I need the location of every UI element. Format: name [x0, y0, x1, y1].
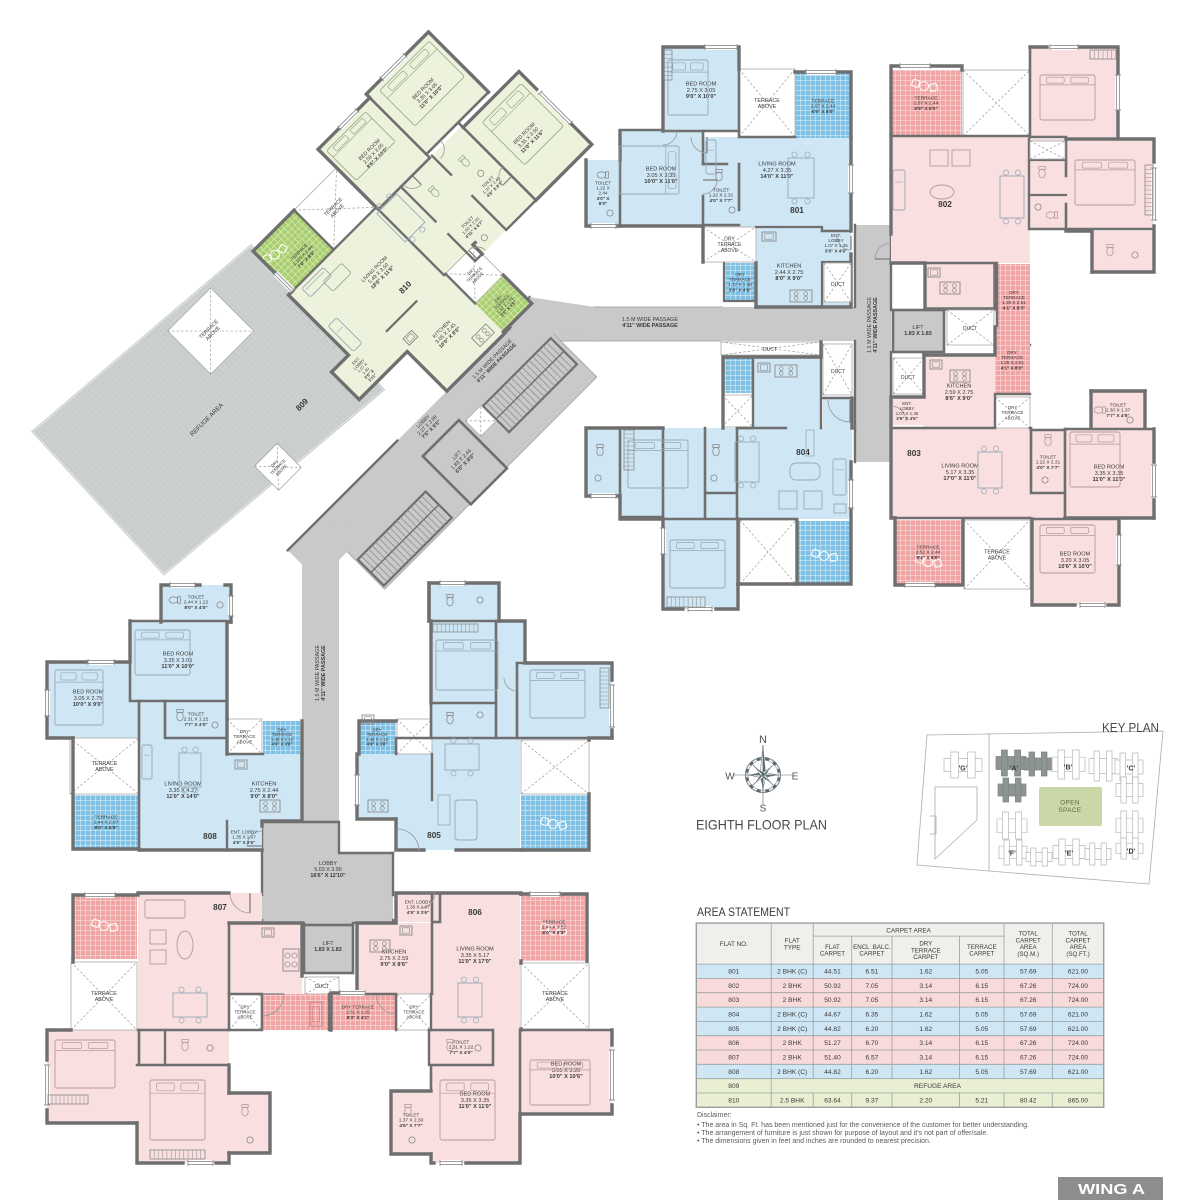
svg-text:TOILET: TOILET: [1110, 402, 1127, 408]
svg-text:ABOVE: ABOVE: [237, 739, 253, 744]
svg-text:AREA: AREA: [1070, 944, 1088, 951]
svg-text:2.07 X 2.44: 2.07 X 2.44: [914, 101, 939, 107]
svg-text:ABOVE: ABOVE: [95, 767, 114, 773]
svg-text:7'7" X 4'0": 7'7" X 4'0": [449, 1050, 472, 1056]
svg-text:2.75 X 3.05: 2.75 X 3.05: [687, 88, 716, 94]
svg-text:807: 807: [213, 903, 227, 912]
svg-text:8'0" X 4'0": 8'0" X 4'0": [184, 605, 207, 611]
svg-text:2 BHK: 2 BHK: [783, 983, 803, 990]
svg-text:67.26: 67.26: [1020, 983, 1037, 990]
svg-text:BED ROOM: BED ROOM: [460, 1092, 491, 1098]
svg-text:LIVING ROOM: LIVING ROOM: [941, 464, 979, 470]
svg-text:2.75 X 2.59: 2.75 X 2.59: [380, 956, 409, 962]
svg-text:3'6" X 4'9": 3'6" X 4'9": [729, 287, 751, 292]
svg-text:4'6" X 7'7": 4'6" X 7'7": [399, 1123, 422, 1129]
svg-text:6'9" X 8'0": 6'9" X 8'0": [914, 106, 937, 112]
svg-text:4'5" X 3'6": 4'5" X 3'6": [233, 840, 255, 845]
svg-text:2.20: 2.20: [919, 1097, 932, 1104]
svg-text:3.05 X 3.20: 3.05 X 3.20: [552, 1068, 581, 1074]
svg-text:11'0" X 17'0": 11'0" X 17'0": [458, 959, 492, 965]
svg-text:5.05: 5.05: [975, 1012, 988, 1019]
svg-text:TOILET: TOILET: [453, 1039, 470, 1045]
svg-text:5.05: 5.05: [975, 969, 988, 976]
svg-text:Disclaimer:: Disclaimer:: [697, 1112, 732, 1119]
svg-text:621.00: 621.00: [1068, 1069, 1089, 1076]
svg-text:809: 809: [728, 1083, 739, 1090]
svg-text:W: W: [725, 772, 735, 783]
svg-text:14'0" X 11'0": 14'0" X 11'0": [760, 174, 794, 180]
svg-text:TERRACE: TERRACE: [915, 95, 938, 101]
svg-text:CARPET: CARPET: [820, 951, 845, 958]
svg-text:CARPET: CARPET: [913, 954, 938, 961]
svg-text:• The arrangement of furniture: • The arrangement of furniture is just s…: [697, 1130, 988, 1137]
svg-text:3.20 X 3.05: 3.20 X 3.05: [1061, 558, 1090, 564]
svg-text:5.05: 5.05: [975, 1026, 988, 1033]
svg-text:3.14: 3.14: [919, 1040, 932, 1047]
svg-text:803: 803: [728, 997, 739, 1004]
svg-text:1.62: 1.62: [919, 1026, 932, 1033]
svg-text:2 BHK: 2 BHK: [783, 997, 803, 1004]
svg-text:ABOVE: ABOVE: [406, 1015, 421, 1020]
svg-text:DUCT: DUCT: [763, 347, 777, 353]
svg-text:7'7" X 4'6": 7'7" X 4'6": [1106, 413, 1129, 419]
svg-text:TYPE: TYPE: [784, 944, 801, 951]
svg-text:44.51: 44.51: [824, 969, 841, 976]
svg-text:2 BHK (C): 2 BHK (C): [777, 1069, 807, 1076]
svg-text:REFUGE AREA: REFUGE AREA: [914, 1083, 962, 1090]
svg-text:LOBBY: LOBBY: [319, 861, 337, 867]
svg-text:4'1" X 8'3": 4'1" X 8'3": [1001, 365, 1023, 370]
svg-text:ABOVE: ABOVE: [546, 997, 565, 1003]
svg-text:10'0" X 10'6": 10'0" X 10'6": [549, 1074, 583, 1080]
svg-text:E: E: [792, 772, 799, 783]
svg-text:10'0" X 9'0": 10'0" X 9'0": [73, 702, 104, 708]
svg-text:4'5" X 3'6": 4'5" X 3'6": [407, 910, 429, 915]
svg-text:621.00: 621.00: [1068, 969, 1089, 976]
svg-text:11'0" X 11'0": 11'0" X 11'0": [1093, 477, 1126, 483]
svg-text:AREA: AREA: [1020, 944, 1038, 951]
svg-text:S: S: [760, 804, 767, 815]
svg-text:3.14: 3.14: [919, 983, 932, 990]
svg-text:3'6" X 4'5": 3'6" X 4'5": [896, 416, 917, 421]
svg-text:44.82: 44.82: [824, 1069, 841, 1076]
svg-text:17'0" X 11'0": 17'0" X 11'0": [943, 476, 977, 482]
svg-text:16'6" X 12'10": 16'6" X 12'10": [310, 873, 346, 879]
svg-text:51.40: 51.40: [824, 1055, 841, 1062]
svg-text:9'0" X 10'0": 9'0" X 10'0": [686, 94, 717, 100]
svg-text:2 BHK: 2 BHK: [783, 1040, 803, 1047]
svg-text:SPACE: SPACE: [1058, 807, 1081, 814]
svg-text:7.05: 7.05: [865, 983, 878, 990]
svg-text:3'6" X 4'5": 3'6" X 4'5": [825, 248, 847, 253]
svg-text:DUCT: DUCT: [831, 282, 845, 288]
svg-text:TERRACE: TERRACE: [543, 919, 566, 925]
svg-text:804: 804: [796, 448, 810, 457]
svg-text:• The area in Sq. Ft. has been: • The area in Sq. Ft. has been mentioned…: [697, 1122, 1029, 1129]
svg-text:DRY: DRY: [919, 940, 932, 947]
svg-text:1.22 X 2.31: 1.22 X 2.31: [709, 193, 734, 199]
svg-text:2.30 X 1.37: 2.30 X 1.37: [1106, 408, 1131, 414]
svg-text:6.35: 6.35: [865, 1012, 878, 1019]
svg-text:2 BHK (C): 2 BHK (C): [777, 1026, 807, 1033]
svg-text:DUCT: DUCT: [901, 375, 915, 381]
svg-text:7'7" X 4'0": 7'7" X 4'0": [184, 722, 207, 728]
svg-text:802: 802: [938, 200, 952, 209]
svg-text:BED ROOM: BED ROOM: [1060, 552, 1091, 558]
svg-text:805: 805: [427, 831, 441, 840]
svg-text:7.05: 7.05: [865, 997, 878, 1004]
svg-text:4'11" WIDE PASSAGE: 4'11" WIDE PASSAGE: [873, 297, 879, 353]
svg-text:'D': 'D': [1127, 849, 1136, 856]
svg-text:'E': 'E': [1065, 851, 1073, 858]
svg-text:805: 805: [728, 1026, 739, 1033]
svg-text:5.17 X 3.35: 5.17 X 3.35: [946, 470, 975, 476]
svg-text:TOILET: TOILET: [713, 187, 730, 193]
svg-text:FLAT NO.: FLAT NO.: [720, 941, 748, 948]
svg-text:TERRACE: TERRACE: [917, 544, 940, 550]
svg-text:1.22 X 2.31: 1.22 X 2.31: [1036, 460, 1061, 466]
svg-text:ABOVE: ABOVE: [1005, 415, 1021, 420]
svg-text:6.20: 6.20: [865, 1026, 878, 1033]
svg-text:1.83 X 1.83: 1.83 X 1.83: [904, 331, 932, 337]
svg-text:KITCHEN: KITCHEN: [777, 264, 802, 270]
svg-text:2 BHK (C): 2 BHK (C): [777, 1012, 807, 1019]
svg-text:OPEN: OPEN: [1060, 800, 1080, 807]
svg-text:6.57: 6.57: [865, 1055, 878, 1062]
svg-text:11'0" X 14'0": 11'0" X 14'0": [166, 794, 200, 800]
svg-text:'B': 'B': [1064, 765, 1073, 772]
svg-text:808: 808: [203, 832, 217, 841]
svg-text:3.35 X 3.35: 3.35 X 3.35: [1095, 471, 1124, 477]
svg-text:1.37 X 2.30: 1.37 X 2.30: [399, 1118, 424, 1124]
svg-text:57.69: 57.69: [1020, 1026, 1037, 1033]
svg-text:807: 807: [728, 1055, 739, 1062]
svg-text:1.83 X 1.83: 1.83 X 1.83: [314, 947, 342, 953]
svg-text:1.62: 1.62: [919, 1012, 932, 1019]
svg-text:2.31 X 1.22: 2.31 X 1.22: [184, 717, 209, 723]
svg-text:4'0" X 7'7": 4'0" X 7'7": [1036, 465, 1059, 471]
svg-text:724.00: 724.00: [1068, 1055, 1089, 1062]
svg-text:3.35 X 5.17: 3.35 X 5.17: [461, 953, 490, 959]
svg-text:TERRACE: TERRACE: [812, 98, 835, 104]
svg-text:(SQ.FT.): (SQ.FT.): [1066, 951, 1089, 958]
svg-text:DUCT: DUCT: [963, 326, 977, 332]
svg-text:724.00: 724.00: [1068, 1040, 1089, 1047]
svg-text:5.21: 5.21: [975, 1097, 988, 1104]
svg-text:BED ROOM: BED ROOM: [686, 82, 717, 88]
svg-text:801: 801: [790, 206, 804, 215]
svg-text:2 BHK: 2 BHK: [783, 1055, 803, 1062]
svg-text:KITCHEN: KITCHEN: [252, 782, 277, 788]
svg-text:2.44 X 2.75: 2.44 X 2.75: [775, 270, 804, 276]
svg-text:44.67: 44.67: [824, 1012, 841, 1019]
svg-text:3.35 X 3.05: 3.35 X 3.05: [164, 658, 193, 664]
svg-text:TOILET: TOILET: [188, 594, 205, 600]
svg-text:3.14: 3.14: [919, 997, 932, 1004]
svg-text:BED ROOM: BED ROOM: [646, 167, 677, 173]
svg-text:LIVING ROOM: LIVING ROOM: [456, 947, 494, 953]
svg-text:808: 808: [728, 1069, 739, 1076]
svg-text:DUCT: DUCT: [831, 369, 845, 375]
svg-text:EIGHTH FLOOR PLAN: EIGHTH FLOOR PLAN: [696, 817, 827, 833]
svg-text:8'0" X 9'0": 8'0" X 9'0": [775, 276, 803, 282]
svg-text:67.26: 67.26: [1020, 1055, 1037, 1062]
svg-text:CARPET: CARPET: [859, 951, 884, 958]
svg-text:44.82: 44.82: [824, 1026, 841, 1033]
svg-text:2.5 BHK: 2.5 BHK: [780, 1097, 805, 1104]
svg-text:ABOVE: ABOVE: [95, 997, 114, 1003]
svg-text:ABOVE: ABOVE: [237, 1015, 252, 1020]
svg-text:BED ROOM: BED ROOM: [163, 652, 194, 658]
svg-text:63.64: 63.64: [824, 1097, 841, 1104]
svg-text:'A': 'A': [1010, 766, 1019, 773]
svg-text:6.70: 6.70: [865, 1040, 878, 1047]
svg-text:LIVING ROOM: LIVING ROOM: [758, 162, 796, 168]
svg-text:67.26: 67.26: [1020, 997, 1037, 1004]
svg-text:N: N: [759, 734, 767, 746]
svg-text:10'0" X 11'0": 10'0" X 11'0": [644, 179, 678, 185]
svg-text:'G': 'G': [959, 766, 968, 773]
svg-text:3.35 X 3.35: 3.35 X 3.35: [461, 1098, 490, 1104]
svg-text:3.05 X 3.35: 3.05 X 3.35: [647, 173, 676, 179]
svg-text:810: 810: [728, 1097, 739, 1104]
svg-text:6.15: 6.15: [975, 997, 988, 1004]
svg-text:3.05 X 2.75: 3.05 X 2.75: [74, 696, 103, 702]
svg-text:804: 804: [728, 1012, 739, 1019]
svg-text:4.27 X 3.35: 4.27 X 3.35: [763, 168, 792, 174]
svg-text:4'11" WIDE PASSAGE: 4'11" WIDE PASSAGE: [622, 323, 678, 329]
svg-text:2.75 X 2.44: 2.75 X 2.44: [250, 788, 279, 794]
svg-text:6.20: 6.20: [865, 1069, 878, 1076]
svg-text:2 BHK (C): 2 BHK (C): [777, 969, 807, 976]
svg-text:9'0" X 8'0": 9'0" X 8'0": [250, 794, 278, 800]
svg-text:ABOVE: ABOVE: [988, 555, 1007, 561]
svg-text:(SQ.M.): (SQ.M.): [1017, 951, 1039, 958]
svg-text:5.05: 5.05: [975, 1069, 988, 1076]
svg-text:KEY PLAN: KEY PLAN: [1102, 720, 1159, 735]
svg-text:50.92: 50.92: [824, 983, 841, 990]
svg-text:WING A: WING A: [1078, 1181, 1145, 1198]
svg-text:57.69: 57.69: [1020, 969, 1037, 976]
svg-text:724.00: 724.00: [1068, 997, 1089, 1004]
svg-text:4'9" X 3'8": 4'9" X 3'8": [367, 742, 388, 747]
svg-text:• The dimensions given in feet: • The dimensions given in feet and inche…: [697, 1138, 931, 1145]
svg-text:TOILET: TOILET: [188, 711, 205, 717]
svg-text:2.52 X 2.44: 2.52 X 2.44: [916, 550, 941, 556]
svg-text:621.00: 621.00: [1068, 1026, 1089, 1033]
svg-text:ABOVE: ABOVE: [758, 104, 777, 110]
svg-text:51.27: 51.27: [824, 1040, 841, 1047]
svg-text:10'6" X 10'0": 10'6" X 10'0": [1058, 564, 1092, 570]
svg-text:ABOVE: ABOVE: [721, 248, 739, 254]
svg-text:1.62: 1.62: [919, 969, 932, 976]
svg-text:9.37: 9.37: [865, 1097, 878, 1104]
svg-text:6.15: 6.15: [975, 983, 988, 990]
svg-text:4'1" X 8'3": 4'1" X 8'3": [1003, 305, 1025, 310]
svg-text:1.62: 1.62: [919, 1069, 932, 1076]
svg-text:2.07 X 2.44: 2.07 X 2.44: [811, 104, 836, 110]
svg-text:BED ROOM: BED ROOM: [73, 690, 104, 696]
svg-text:AREA STATEMENT: AREA STATEMENT: [697, 907, 790, 919]
svg-text:4'0" X 7'7": 4'0" X 7'7": [709, 198, 732, 204]
svg-text:6.15: 6.15: [975, 1040, 988, 1047]
svg-text:57.69: 57.69: [1020, 1069, 1037, 1076]
svg-text:9'0" X 8'6": 9'0" X 8'6": [380, 962, 408, 968]
svg-text:806: 806: [728, 1040, 739, 1047]
svg-text:865.00: 865.00: [1068, 1097, 1089, 1104]
svg-text:8'3" X 4'1": 8'3" X 4'1": [347, 1015, 369, 1020]
svg-text:2.44 X 1.22: 2.44 X 1.22: [184, 600, 209, 606]
svg-text:6.51: 6.51: [865, 969, 878, 976]
svg-text:724.00: 724.00: [1068, 983, 1089, 990]
svg-text:802: 802: [728, 983, 739, 990]
svg-text:TOILET: TOILET: [1040, 454, 1057, 460]
svg-text:DUCT: DUCT: [315, 984, 329, 990]
svg-text:2.59 X 2.75: 2.59 X 2.75: [945, 390, 974, 396]
svg-text:2.44 X 2.52: 2.44 X 2.52: [542, 925, 567, 931]
svg-text:'F': 'F': [1008, 851, 1016, 858]
svg-text:4'9" X 3'8": 4'9" X 3'8": [272, 742, 293, 747]
svg-text:8'3" X 8'0": 8'3" X 8'0": [916, 555, 939, 561]
svg-text:8'6" X 9'0": 8'6" X 9'0": [945, 396, 973, 402]
svg-text:FLAT: FLAT: [785, 937, 800, 944]
svg-text:4'11" WIDE PASSAGE: 4'11" WIDE PASSAGE: [321, 645, 327, 701]
svg-text:6.15: 6.15: [975, 1055, 988, 1062]
svg-text:11'0" X 11'0": 11'0" X 11'0": [459, 1104, 492, 1110]
svg-text:8'0": 8'0": [599, 201, 607, 206]
svg-text:621.00: 621.00: [1068, 1012, 1089, 1019]
svg-text:50.92: 50.92: [824, 997, 841, 1004]
svg-text:80.42: 80.42: [1020, 1097, 1037, 1104]
svg-text:67.26: 67.26: [1020, 1040, 1037, 1047]
svg-text:TERRACE: TERRACE: [95, 814, 118, 820]
svg-text:CARPET: CARPET: [969, 951, 994, 958]
svg-text:CARPET AREA: CARPET AREA: [886, 927, 931, 934]
svg-text:'C': 'C': [1127, 766, 1136, 773]
svg-text:6'9" X 8'0": 6'9" X 8'0": [811, 109, 834, 115]
svg-text:2.44 X 2.07: 2.44 X 2.07: [94, 820, 119, 826]
svg-text:806: 806: [468, 908, 482, 917]
svg-text:KITCHEN: KITCHEN: [382, 950, 407, 956]
svg-text:57.69: 57.69: [1020, 1012, 1037, 1019]
svg-text:KITCHEN: KITCHEN: [947, 384, 972, 390]
svg-text:803: 803: [907, 449, 921, 458]
svg-text:8'0" X 6'9": 8'0" X 6'9": [94, 825, 117, 831]
svg-text:3.14: 3.14: [919, 1055, 932, 1062]
svg-text:801: 801: [728, 969, 739, 976]
svg-text:8'0" X 8'3": 8'0" X 8'3": [542, 930, 565, 936]
